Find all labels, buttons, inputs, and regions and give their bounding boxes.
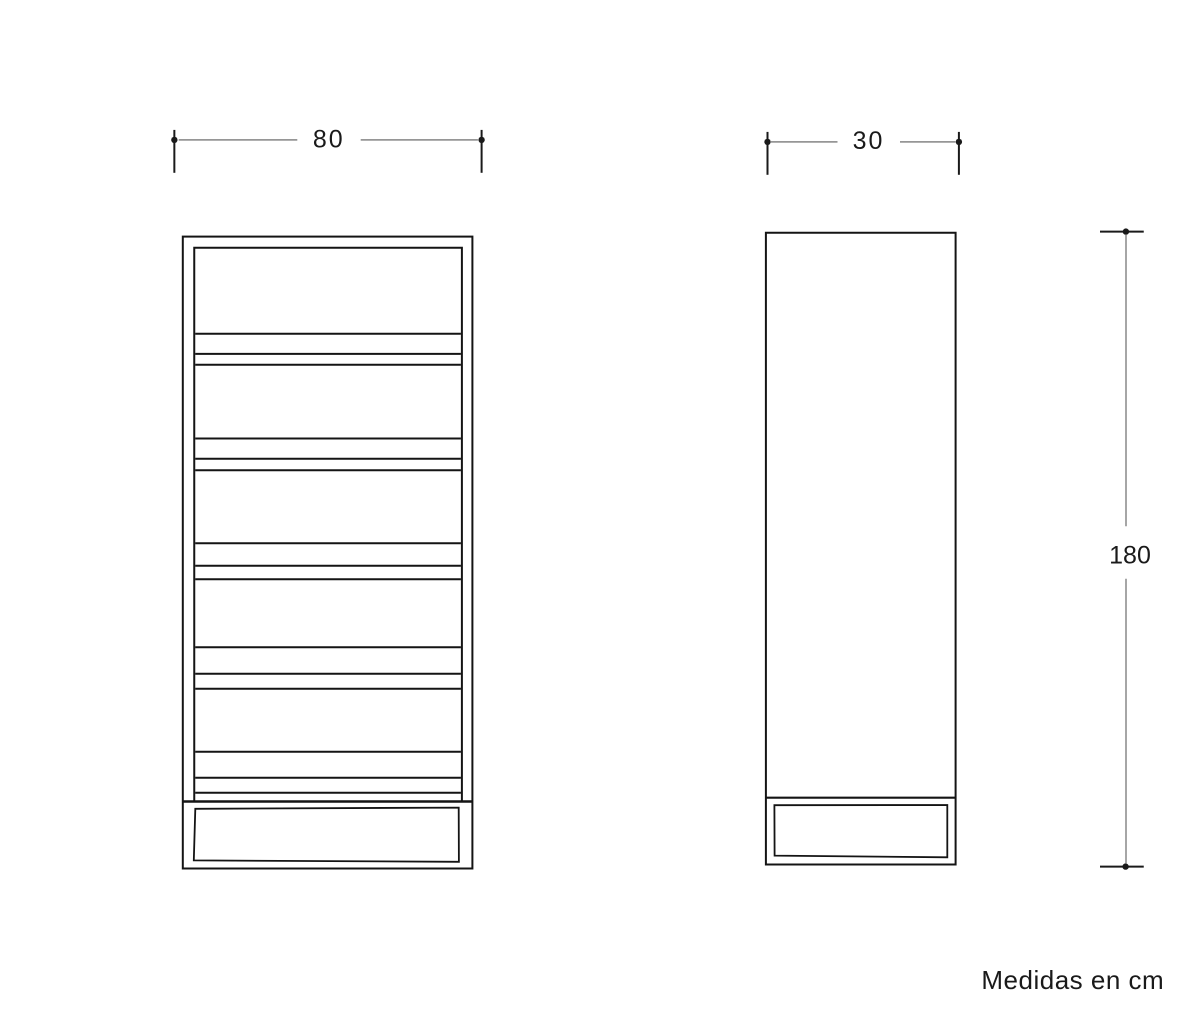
svg-text:Medidas en cm: Medidas en cm bbox=[981, 965, 1164, 995]
svg-text:30: 30 bbox=[853, 127, 885, 155]
svg-text:80: 80 bbox=[313, 125, 345, 153]
svg-text:180: 180 bbox=[1109, 541, 1151, 569]
